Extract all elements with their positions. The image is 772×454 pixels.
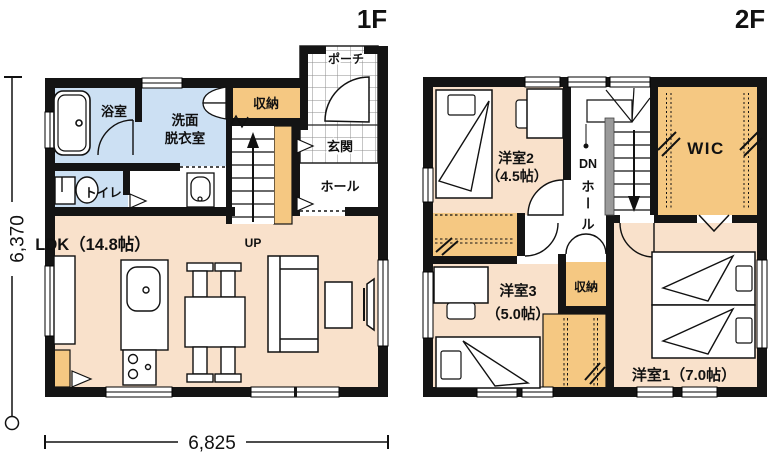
- desk-icon-bedroom2: [527, 89, 563, 138]
- bedroom1-label: 洋室1（7.0帖）: [632, 366, 736, 384]
- storage-1f-label: 収納: [253, 96, 279, 111]
- ldk-label: LDK（14.8帖）: [35, 234, 151, 254]
- hall-2f-label-3: ル: [581, 217, 594, 232]
- wic-label: WIC: [687, 139, 725, 158]
- entrance-label: 玄関: [327, 139, 353, 154]
- height-dimension-label: 6,370: [8, 215, 29, 263]
- porch-label: ポーチ: [328, 51, 364, 66]
- toilet-label: トイレ: [84, 186, 122, 200]
- bedroom1-furniture: [652, 252, 755, 358]
- up-label: UP: [245, 236, 262, 250]
- floor1-plan: 浴室 洗面 脱衣室 トイレ 収納 ポーチ 玄関 ホール LDK（14.8帖） U…: [35, 46, 388, 397]
- hall-2f-label-1: ホ: [581, 179, 594, 194]
- bedroom2-closet: [433, 213, 517, 256]
- hall-1f-label: ホール: [320, 179, 359, 194]
- chair-icon: [447, 303, 475, 319]
- width-dimension-label: 6,825: [188, 433, 236, 454]
- corridor: [128, 166, 232, 211]
- floor2-plan: 洋室2 （4.5帖） 洋室3 （5.0帖） 洋室1（7.0帖） WIC DN ホ…: [423, 77, 767, 397]
- sofa-icon: [268, 256, 318, 352]
- bedroom3-label: 洋室3: [499, 282, 536, 300]
- bedroom2-label: 洋室2: [498, 150, 534, 166]
- dn-label: DN: [579, 157, 597, 171]
- dining-table: [185, 297, 245, 347]
- bedroom1-doorway: [620, 215, 654, 223]
- washroom-label-1: 洗面: [172, 112, 199, 128]
- bathtub-icon: [54, 91, 90, 155]
- floor2-title: 2F: [735, 4, 765, 34]
- tv-icon: [367, 279, 374, 330]
- bedroom1-closet: [543, 314, 606, 390]
- floor1-title: 1F: [357, 4, 387, 34]
- hall-2f-label-2: ー: [580, 196, 595, 209]
- storage-2f-label: 収納: [574, 279, 598, 294]
- floor-plan-svg: 浴室 洗面 脱衣室 トイレ 収納 ポーチ 玄関 ホール LDK（14.8帖） U…: [0, 0, 772, 454]
- desk-icon-bedroom3: [434, 267, 488, 303]
- bedroom2-size-label: （4.5帖）: [486, 168, 547, 184]
- washbasin-icon: [187, 173, 214, 207]
- floor-plan-image: 浴室 洗面 脱衣室 トイレ 収納 ポーチ 玄関 ホール LDK（14.8帖） U…: [0, 0, 772, 454]
- kitchen-cabinet: [54, 256, 75, 344]
- bath-label: 浴室: [101, 104, 127, 119]
- hall-2f-lower: [525, 215, 614, 256]
- bedroom3-size-label: （5.0帖）: [486, 305, 550, 323]
- washroom-label-2: 脱衣室: [165, 130, 206, 146]
- stair-side-closet: [274, 126, 292, 224]
- coffee-table-icon: [325, 282, 352, 328]
- stair-handrail: [605, 118, 614, 215]
